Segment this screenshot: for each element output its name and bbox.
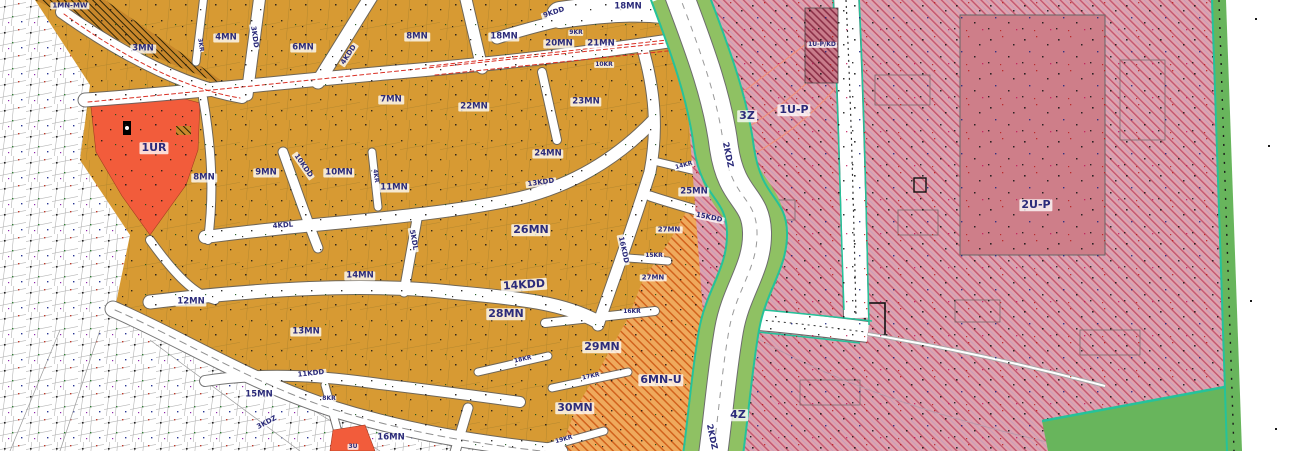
road-label-10kr: 10KR [594,62,614,68]
zone-label-6mn: 6MN [290,44,316,53]
zone-label-24mn: 24MN [532,150,563,159]
zone-label-6mn-u: 6MN-U [638,374,683,386]
zone-label-27mn-a: 27MN [656,226,683,233]
zone-label-11mn: 11MN [378,184,409,193]
zone-label-21mn: 21MN [585,40,616,49]
zone-label-23mn: 23MN [570,98,601,107]
zone-label-14mn: 14MN [344,272,375,281]
zone-label-26mn: 26MN [511,224,550,236]
zone-label-12mn: 12MN [175,298,206,307]
road-label-9kr: 9KR [568,30,583,36]
zone-label-13mn: 13MN [290,328,321,337]
zoning-map-canvas[interactable]: 1MN-MW 3MN 4MN 6MN 8MN 18MN 18MN 9KDD 20… [0,0,1296,451]
zone-label-20mn: 20MN [543,40,574,49]
zone-label-9mn: 9MN [253,169,279,178]
road-label-15kr: 15KR [644,253,664,259]
zone-label-4mn: 4MN [213,34,239,43]
zone-label-25mn: 25MN [678,188,709,197]
zone-label-1u-p: 1U-P [777,104,810,116]
zone-label-8mn-b: 8MN [191,174,217,183]
zone-label-3mn: 3MN [130,45,156,54]
road-label-16kr: 16KR [622,309,642,315]
zone-label-16mn: 16MN [375,434,406,443]
zone-label-10mn: 10MN [323,169,354,178]
zone-label-1mn-mw: 1MN-MW [50,2,89,9]
zone-label-1ur: 1UR [139,142,168,154]
road-label-8kr: 8KR [321,396,336,402]
zone-label-3z: 3Z [737,110,757,122]
zone-label-27mn-b: 27MN [640,274,667,281]
zone-label-29mn: 29MN [582,341,621,353]
zone-label-18mn-a: 18MN [488,33,519,42]
zone-label-1u-p-kd: 1U-P/KD [807,42,837,48]
zone-label-2u-p: 2U-P [1019,199,1052,211]
zone-label-7mn: 7MN [378,96,404,105]
zone-label-15mn: 15MN [243,391,274,400]
zone-label-18mn-b: 18MN [612,3,643,12]
zone-label-3u: 3U [347,444,358,450]
zone-label-30mn: 30MN [555,402,594,414]
zone-label-4z: 4Z [728,409,748,421]
road-label-3kr: 3KR [196,37,204,53]
zone-label-8mn-a: 8MN [404,33,430,42]
zone-label-22mn: 22MN [458,103,489,112]
road-label-4kr: 4KR [371,168,379,184]
zone-label-28mn: 28MN [486,308,525,320]
